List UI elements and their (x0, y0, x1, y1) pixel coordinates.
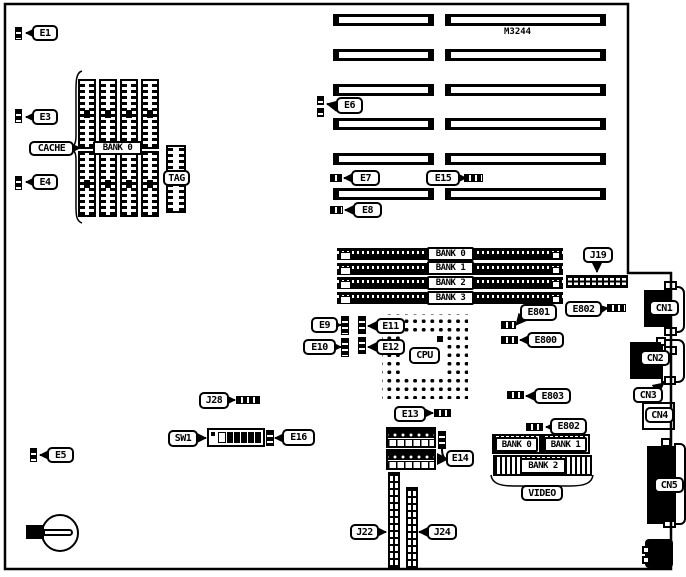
video-bank-label: BANK 0 (495, 437, 538, 452)
jumper-e13 (434, 409, 451, 417)
mounting-tab (664, 327, 677, 336)
memory-bank-label: BANK 2 (427, 276, 474, 290)
jumper-label-e4: E4 (32, 174, 58, 190)
jumper-label-e8: E8 (353, 202, 382, 218)
mounting-tab (663, 520, 676, 528)
isa-slot (445, 118, 606, 130)
cache-chip (78, 151, 96, 217)
tag-label: TAG (163, 170, 190, 186)
jumper-label-e801: E801 (520, 304, 557, 321)
dip-socket-chip (386, 449, 436, 470)
isa-slot (445, 14, 606, 26)
din-pin (642, 546, 650, 554)
jumper-e802-bottom (526, 423, 543, 431)
header-label-j28: J28 (199, 392, 229, 409)
pin-header-j19 (566, 275, 628, 288)
jumper-label-e802-top: E802 (565, 301, 602, 317)
jumper-label-e1: E1 (32, 25, 58, 41)
cache-chip (120, 79, 138, 149)
connector-label-cn2: CN2 (640, 350, 670, 366)
jumper-e15 (464, 174, 483, 182)
isa-slot (333, 118, 434, 130)
jumper-label-e13: E13 (394, 406, 426, 422)
cache-chip (141, 79, 159, 149)
jumper-e1 (15, 27, 22, 40)
header-label-j22: J22 (350, 524, 379, 540)
jumper-e801 (501, 321, 516, 329)
isa-slot (445, 49, 606, 61)
cpu-pin1-marker (437, 336, 443, 342)
dip-switch-mark (211, 432, 217, 443)
jumper-e802-top (607, 304, 626, 312)
isa-slot (445, 188, 606, 200)
jumper-e803 (507, 391, 524, 399)
chip-pins (388, 451, 434, 460)
connector-label-cn1: CN1 (649, 300, 679, 316)
cache-bank-label: BANK 0 (93, 141, 142, 155)
cache-chip (141, 151, 159, 217)
jumper-e10 (341, 338, 349, 357)
board-chip-label: M3244 (504, 27, 531, 37)
isa-slot (445, 153, 606, 165)
isa-slot (445, 84, 606, 96)
pin-header-j24 (406, 487, 418, 570)
jumper-e3 (15, 109, 22, 123)
header-label-j24: J24 (427, 524, 457, 540)
mounting-tab (664, 376, 676, 385)
jumper-label-e802-bottom: E802 (550, 418, 587, 435)
jumper-e11 (358, 316, 366, 334)
battery-clip (26, 525, 44, 539)
video-label: VIDEO (521, 485, 563, 501)
cache-chip (99, 151, 117, 217)
battery-slot (43, 529, 73, 536)
jumper-e14 (438, 431, 446, 449)
jumper-label-e12: E12 (376, 339, 405, 355)
dip-switch-segment (241, 432, 247, 443)
cache-chip (120, 151, 138, 217)
dip-switch-sw1 (207, 428, 265, 447)
pin-header-j22 (388, 472, 400, 569)
chip-pins (388, 429, 434, 438)
cache-chip (78, 79, 96, 149)
connector-label-cn5: CN5 (654, 477, 684, 493)
jumper-e8 (330, 206, 343, 214)
isa-slot (333, 153, 434, 165)
switch-label-sw1: SW1 (168, 430, 198, 447)
cache-chip (99, 79, 117, 149)
dip-switch-segment (248, 432, 254, 443)
connector-label-cn3: CN3 (633, 387, 663, 403)
memory-bank-label: BANK 1 (427, 261, 474, 275)
dip-switch-segment (218, 432, 226, 443)
mounting-tab (664, 281, 677, 290)
jumper-label-e15: E15 (426, 170, 460, 186)
dip-socket-chip (386, 427, 436, 448)
jumper-e6 (317, 108, 324, 117)
cache-label: CACHE (29, 141, 74, 156)
jumper-e16 (266, 430, 274, 446)
jumper-j28 (236, 396, 260, 404)
header-label-j19: J19 (583, 247, 613, 263)
jumper-label-e3: E3 (32, 109, 58, 125)
jumper-label-e5: E5 (47, 447, 74, 463)
jumper-label-e11: E11 (376, 318, 405, 334)
dip-switch-segment (234, 432, 240, 443)
dip-switch-segment (255, 432, 261, 443)
motherboard-diagram: E1 E3 E4 CACHE BANK 0 TAG M3244 E6 E7 E1… (0, 0, 686, 577)
jumper-label-e14: E14 (446, 450, 474, 467)
memory-bank-label: BANK 3 (427, 291, 474, 305)
jumper-label-e6: E6 (336, 97, 363, 114)
jumper-label-e10: E10 (303, 339, 336, 355)
memory-bank-label: BANK 0 (427, 247, 474, 261)
jumper-e6 (317, 96, 324, 105)
din-pin (642, 556, 650, 564)
jumper-e7 (330, 174, 342, 182)
jumper-label-e803: E803 (534, 388, 571, 404)
jumper-e9 (341, 316, 349, 335)
dip-switch-segment (227, 432, 233, 443)
jumper-label-e7: E7 (351, 170, 380, 186)
isa-slot (333, 49, 434, 61)
isa-slot (333, 188, 434, 200)
isa-slot (333, 14, 434, 26)
jumper-e4 (15, 176, 22, 190)
jumper-e800 (501, 336, 518, 344)
isa-slot (333, 84, 434, 96)
cpu-label: CPU (409, 347, 440, 364)
jumper-e5 (30, 448, 37, 462)
connector-label-cn4: CN4 (645, 407, 674, 423)
chip-holes (388, 439, 434, 447)
video-bank-label: BANK 1 (544, 437, 587, 452)
video-bank-label: BANK 2 (520, 458, 566, 474)
jumper-label-e9: E9 (311, 317, 338, 333)
jumper-label-e800: E800 (527, 332, 564, 348)
jumper-e12 (358, 337, 366, 354)
jumper-label-e16: E16 (282, 429, 315, 446)
chip-holes (388, 461, 434, 469)
